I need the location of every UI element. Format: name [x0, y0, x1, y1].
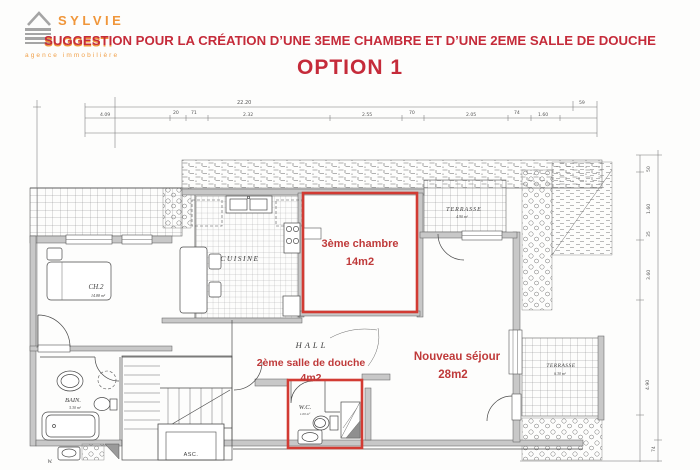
label-wc2: W.: [48, 460, 53, 465]
dim-59: 59: [579, 100, 585, 106]
dim-right-2: 35: [646, 231, 652, 237]
label-bain: BAIN.: [65, 397, 81, 404]
label-terrasse-right: TERRASSE: [546, 363, 575, 369]
label-ch2: CH.2: [89, 283, 104, 291]
dim-top-0: 4.09: [100, 112, 110, 118]
area-terrasse-right: 6.30 m²: [554, 372, 566, 376]
terrace-top: [424, 180, 506, 232]
area-sejour: 28m2: [438, 369, 467, 381]
area-wc: 1.00 m²: [300, 412, 311, 416]
area-ch2: 14.88 m²: [91, 293, 106, 298]
dim-right-3: 3.60: [646, 270, 652, 280]
label-hall: HALL: [295, 340, 329, 350]
terrace-left-strip: [30, 188, 182, 236]
area-terrasse-top: 4.90 m²: [456, 215, 468, 219]
label-douche: 2ème salle de douche: [257, 357, 366, 369]
dim-top-4: 2.55: [362, 112, 372, 118]
room-labels: CUISINE HALL CH.2 14.88 m² BAIN. 5.30 m²…: [48, 207, 576, 465]
dim-right-4: 4.90: [645, 380, 651, 390]
label-asc: ASC.: [184, 452, 199, 458]
dim-top-5: 70: [409, 110, 415, 116]
dim-top-8: 1.60: [538, 112, 548, 118]
label-terrasse-top: TERRASSE: [446, 207, 482, 213]
bathroom-fixtures: [42, 371, 119, 460]
label-chambre: 3ème chambre: [321, 238, 398, 250]
staircase: [122, 356, 232, 460]
dim-right-0: 50: [646, 166, 652, 172]
terrace-right: [522, 338, 600, 416]
dim-top-6: 2.05: [466, 112, 476, 118]
floor-plan: CUISINE HALL CH.2 14.88 m² BAIN. 5.30 m²…: [0, 0, 700, 470]
dim-top-7: 74: [514, 110, 520, 116]
label-wc: W.C.: [299, 404, 312, 411]
page-title: SUGGESTION POUR LA CRÉATION D’UNE 3EME C…: [0, 33, 700, 48]
dim-top-2: 71: [191, 110, 197, 116]
dim-overall: 22.20: [237, 100, 251, 106]
dim-top-1: 20: [173, 110, 179, 116]
area-douche: 4m2: [300, 372, 321, 384]
highlight-box-chambre: [303, 193, 417, 312]
label-cuisine: CUISINE: [220, 254, 259, 263]
dim-top-3: 2.32: [243, 112, 253, 118]
dim-right-5: 74: [651, 446, 657, 452]
label-sejour: Nouveau séjour: [414, 351, 501, 363]
dim-right-1: 1.60: [646, 204, 652, 214]
area-chambre: 14m2: [346, 256, 374, 268]
area-bain: 5.30 m²: [69, 406, 81, 410]
